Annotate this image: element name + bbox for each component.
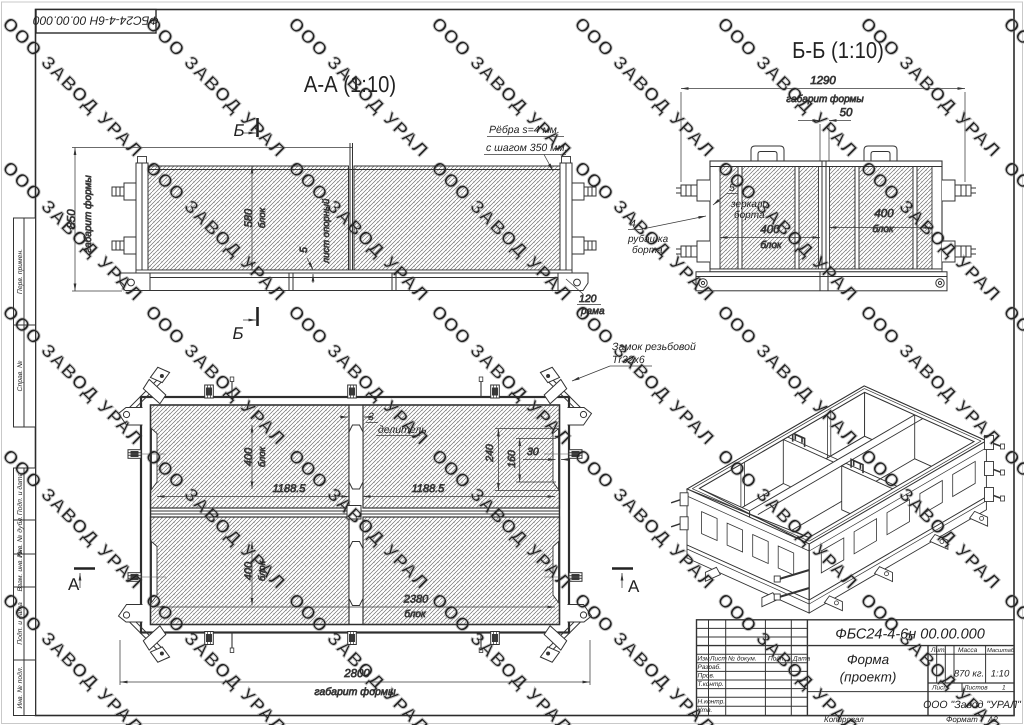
svg-text:1290: 1290 [810,75,836,87]
svg-text:Б: Б [232,324,243,343]
svg-text:блок: блок [872,224,895,235]
svg-text:Взам. инв. №: Взам. инв. № [17,549,24,592]
svg-text:Т.контр.: Т.контр. [698,681,724,688]
svg-text:1188.5: 1188.5 [273,483,307,495]
svg-text:400: 400 [874,208,894,220]
svg-text:5: 5 [298,247,310,253]
svg-text:А: А [628,577,640,596]
svg-text:1: 1 [1002,685,1006,692]
svg-text:блок: блок [404,609,427,620]
svg-text:240: 240 [484,444,496,463]
svg-text:50: 50 [840,107,853,119]
svg-text:30: 30 [527,446,539,458]
svg-text:1:10: 1:10 [991,669,1010,680]
svg-text:400: 400 [243,447,255,466]
svg-text:Справ. №: Справ. № [17,360,24,392]
svg-text:Форма: Форма [847,652,890,667]
svg-text:Перв. примен.: Перв. примен. [17,249,24,294]
svg-text:Разраб.: Разраб. [698,664,722,671]
svg-text:Инв. № подл.: Инв. № подл. [17,666,24,708]
svg-text:580: 580 [243,208,255,227]
svg-text:А: А [68,575,80,594]
svg-text:№ докум.: № докум. [728,656,757,663]
svg-text:Пров.: Пров. [698,673,715,680]
svg-text:Лист: Лист [709,656,727,663]
svg-text:1188.5: 1188.5 [412,483,446,495]
svg-text:(проект): (проект) [840,670,897,685]
svg-text:ФБС24-4-6Н 00.00.000: ФБС24-4-6Н 00.00.000 [33,14,159,28]
svg-text:2380: 2380 [403,594,429,606]
svg-text:блок: блок [257,207,268,228]
svg-text:Масштаб: Масштаб [987,647,1015,654]
svg-text:Масса: Масса [958,647,978,654]
svg-text:160: 160 [506,450,518,468]
svg-text:блок: блок [257,446,268,467]
svg-text:блок: блок [760,240,783,251]
